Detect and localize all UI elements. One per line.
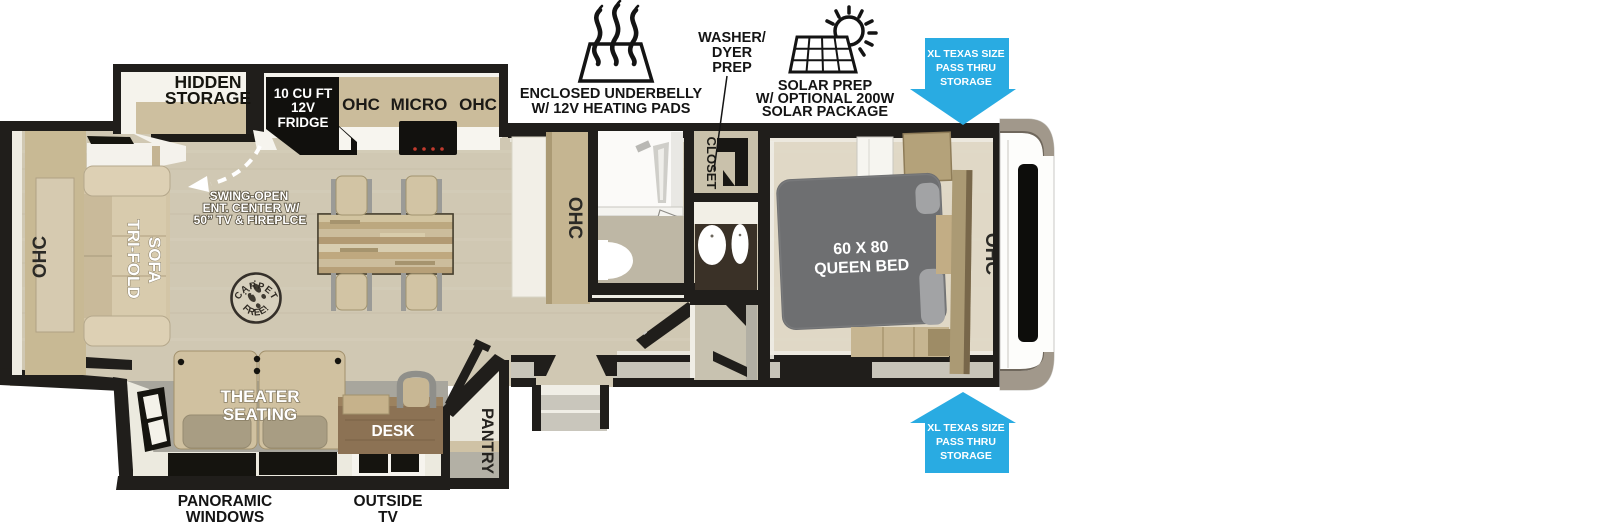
- svg-text:W/ 12V HEATING PADS: W/ 12V HEATING PADS: [532, 101, 691, 117]
- svg-text:XL TEXAS SIZE: XL TEXAS SIZE: [927, 48, 1004, 60]
- svg-text:PREP: PREP: [712, 60, 752, 76]
- svg-text:WINDOWS: WINDOWS: [186, 509, 264, 523]
- svg-text:DESK: DESK: [371, 423, 415, 440]
- svg-text:PANORAMIC: PANORAMIC: [178, 493, 272, 510]
- svg-text:PANTRY: PANTRY: [478, 408, 496, 474]
- svg-text:WASHER/: WASHER/: [698, 30, 766, 46]
- svg-text:XL TEXAS SIZE: XL TEXAS SIZE: [927, 422, 1004, 434]
- svg-text:FRIDGE: FRIDGE: [277, 115, 328, 130]
- svg-text:SOFA: SOFA: [145, 237, 164, 283]
- svg-text:PASS THRU: PASS THRU: [936, 62, 996, 74]
- svg-text:TRI-FOLD: TRI-FOLD: [124, 219, 143, 298]
- svg-text:STORAGE: STORAGE: [165, 88, 251, 108]
- svg-text:TV: TV: [378, 509, 398, 523]
- svg-text:50” TV & FIREPLCE: 50” TV & FIREPLCE: [194, 213, 307, 227]
- svg-text:OHC: OHC: [459, 95, 497, 114]
- svg-text:10 CU FT: 10 CU FT: [274, 86, 333, 101]
- svg-text:STORAGE: STORAGE: [940, 76, 992, 88]
- svg-text:STORAGE: STORAGE: [940, 450, 992, 462]
- svg-text:OHC: OHC: [564, 197, 585, 240]
- svg-text:OHC: OHC: [30, 236, 51, 279]
- svg-text:THEATER: THEATER: [220, 387, 299, 406]
- svg-text:OUTSIDE: OUTSIDE: [354, 493, 423, 510]
- svg-text:60 X 80: 60 X 80: [833, 239, 889, 258]
- svg-text:PASS THRU: PASS THRU: [936, 436, 996, 448]
- svg-text:SEATING: SEATING: [223, 405, 297, 424]
- svg-text:CLOSET: CLOSET: [704, 137, 719, 190]
- svg-text:ENCLOSED UNDERBELLY: ENCLOSED UNDERBELLY: [520, 86, 703, 102]
- svg-text:MICRO: MICRO: [391, 95, 448, 114]
- svg-text:DYER: DYER: [712, 45, 753, 61]
- svg-text:SOLAR PACKAGE: SOLAR PACKAGE: [762, 104, 889, 120]
- svg-text:12V: 12V: [291, 100, 315, 115]
- svg-text:OHC: OHC: [342, 95, 380, 114]
